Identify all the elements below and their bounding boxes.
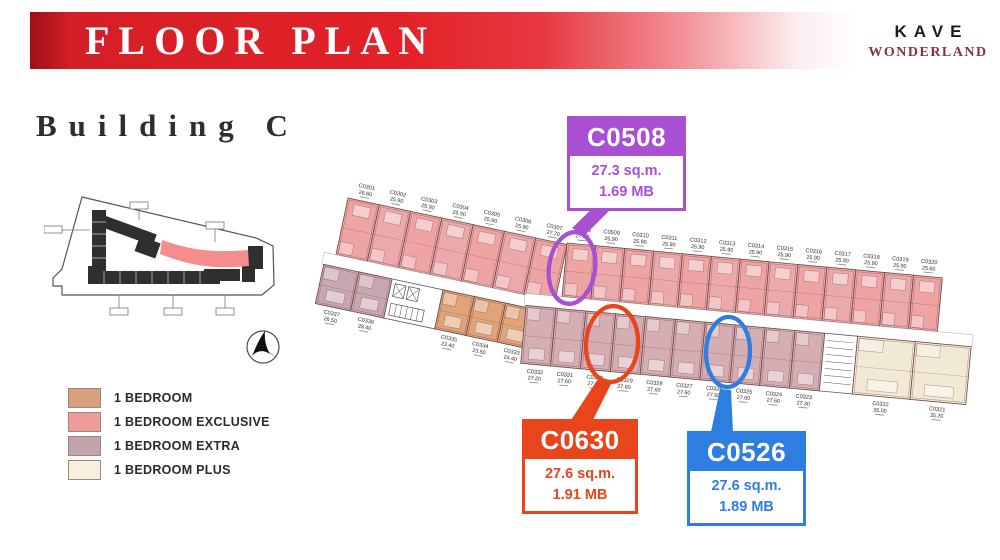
unit-C0322: [852, 336, 915, 399]
unit-C0508: [562, 243, 596, 299]
unit-area-label: 25.60: [922, 265, 936, 272]
callout-c0508: C0508 27.3 sq.m. 1.69 MB: [567, 116, 686, 211]
callout-details: 27.6 sq.m. 1.89 MB: [690, 471, 803, 523]
unit-C0313: [706, 256, 740, 312]
unit-C0311: [649, 251, 683, 307]
unit-area-label: 25.90: [633, 239, 647, 246]
unit-area-label: 25.90: [691, 244, 705, 251]
callout-c0526: C0526 27.6 sq.m. 1.89 MB: [687, 431, 806, 526]
callout-c0630: C0630 27.6 sq.m. 1.91 MB: [522, 419, 638, 514]
unit-area-label: 27.60: [766, 398, 780, 405]
unit-C0332: [521, 305, 556, 366]
callout-area: 27.6 sq.m.: [690, 476, 803, 497]
callout-unit-id: C0526: [690, 434, 803, 471]
unit-area-label: 27.20: [527, 375, 541, 382]
unit-area-label: 25.90: [604, 236, 618, 243]
callout-area: 27.3 sq.m.: [570, 161, 683, 182]
unit-area-label: 27.60: [677, 389, 691, 396]
building-c-floor-plan: C030126.60C030225.90C030325.90C030425.90…: [0, 0, 1000, 560]
floor-plan-slide: FLOOR PLAN KAVE WONDERLAND Building C: [0, 0, 1000, 560]
unit-C0324: [760, 328, 795, 389]
unit-C0317: [822, 267, 856, 323]
unit-area-label: 27.60: [557, 378, 571, 385]
unit-C0328: [640, 317, 675, 378]
callout-details: 27.6 sq.m. 1.91 MB: [525, 459, 635, 511]
unit-C0315: [764, 262, 798, 318]
plan-right-wing: C050827.30C050925.90C031025.90C031125.90…: [517, 223, 980, 423]
callout-price: 1.69 MB: [570, 182, 683, 203]
unit-area-label: 27.60: [647, 387, 661, 394]
unit-C0323: [790, 330, 825, 391]
unit-area-label: 35.00: [873, 408, 887, 415]
unit-area-label: 25.90: [835, 257, 849, 264]
callout-area: 27.6 sq.m.: [525, 464, 635, 485]
unit-area-label: 35.70: [930, 413, 944, 420]
callout-details: 27.3 sq.m. 1.69 MB: [570, 156, 683, 208]
unit-C0320: [909, 275, 943, 331]
unit-area-label: 25.90: [662, 241, 676, 248]
unit-area-label: 25.90: [720, 247, 734, 254]
unit-area-label: 27.30: [796, 400, 810, 407]
unit-C0319: [880, 272, 914, 328]
unit-C0314: [735, 259, 769, 315]
unit-C0321: [910, 342, 971, 405]
unit-area-label: 27.60: [736, 395, 750, 402]
unit-C0327: [670, 319, 705, 380]
unit-C0329: [610, 314, 645, 375]
unit-area-label: 25.90: [864, 260, 878, 267]
unit-C0318: [851, 270, 885, 326]
callout-unit-id: C0630: [525, 422, 635, 459]
callout-price: 1.91 MB: [525, 485, 635, 506]
callout-unit-id: C0508: [570, 119, 683, 156]
unit-C0312: [678, 254, 712, 310]
unit-C0331: [551, 308, 586, 369]
unit-area-label: 25.90: [777, 252, 791, 259]
callout-price: 1.89 MB: [690, 497, 803, 518]
unit-C0316: [793, 264, 827, 320]
unit-area-label: 25.90: [806, 255, 820, 262]
unit-area-label: 25.90: [748, 249, 762, 256]
stair-core: [819, 333, 857, 394]
unit-C0310: [620, 248, 654, 304]
unit-area-label: 25.90: [893, 263, 907, 270]
unit-area-label: 27.60: [617, 384, 631, 391]
